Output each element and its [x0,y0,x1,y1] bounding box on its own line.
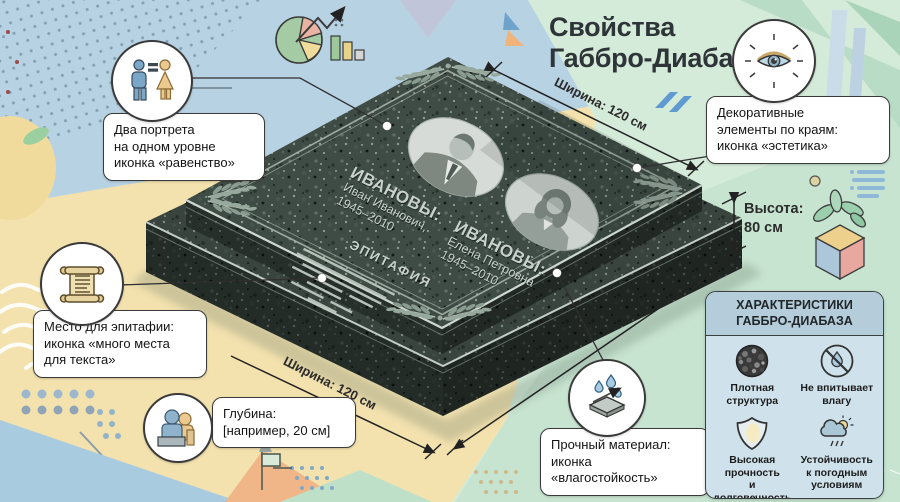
height-label: Высота: 80 см [744,200,803,238]
characteristics-panel: ХАРАКТЕРИСТИКИ ГАББРО-ДИАБАЗА Плотная ст… [705,291,884,499]
material-callout-circle [568,359,646,437]
scroll-icon [54,256,110,312]
shield-icon [733,414,771,452]
material-callout-box: Прочный материал: иконка «влагостойкость… [540,428,710,496]
epitaph-callout-box: Место для эпитафии: иконка «много места … [33,310,207,378]
equality-callout-box: Два портрета на одном уровне иконка «рав… [103,113,265,181]
panel-item-no-water: Не впитывает влагу [795,342,880,408]
panel-item-shield: Высокая прочность и долговечность [710,414,795,499]
equality-callout-circle [111,40,193,122]
water-drops-icon [578,369,636,427]
eye-icon [743,30,805,92]
depth-figures-icon [153,403,203,453]
panel-item-label: Не впитывает влагу [800,382,873,408]
page-title: Свойства Габбро-Диабаз [549,12,747,75]
epitaph-callout-circle [40,242,124,326]
decor-callout-box: Декоративные элементы по краям: иконка «… [706,96,890,164]
infographic-canvas: Свойства Габбро-Диабаз Ширина: 120 см Ши… [0,0,900,502]
panel-body: Плотная структура Не впитывает влагу Выс… [706,336,883,499]
dense-structure-icon [733,342,771,380]
weather-icon [818,414,856,452]
panel-item-label: Плотная структура [726,382,778,408]
decor-callout-circle [732,19,816,103]
depth-callout-box: Глубина: [например, 20 см] [212,397,356,448]
panel-item-weather: Устойчивость к погодным условиям [795,414,880,499]
panel-title: ХАРАКТЕРИСТИКИ ГАББРО-ДИАБАЗА [706,292,883,336]
man-woman-equals-icon [123,52,181,110]
panel-item-label: Устойчивость к погодным условиям [801,454,873,492]
panel-item-dense-structure: Плотная структура [710,342,795,408]
depth-callout-circle [143,393,213,463]
no-water-icon [818,342,856,380]
panel-item-label: Высокая прочность и долговечность [710,454,795,499]
